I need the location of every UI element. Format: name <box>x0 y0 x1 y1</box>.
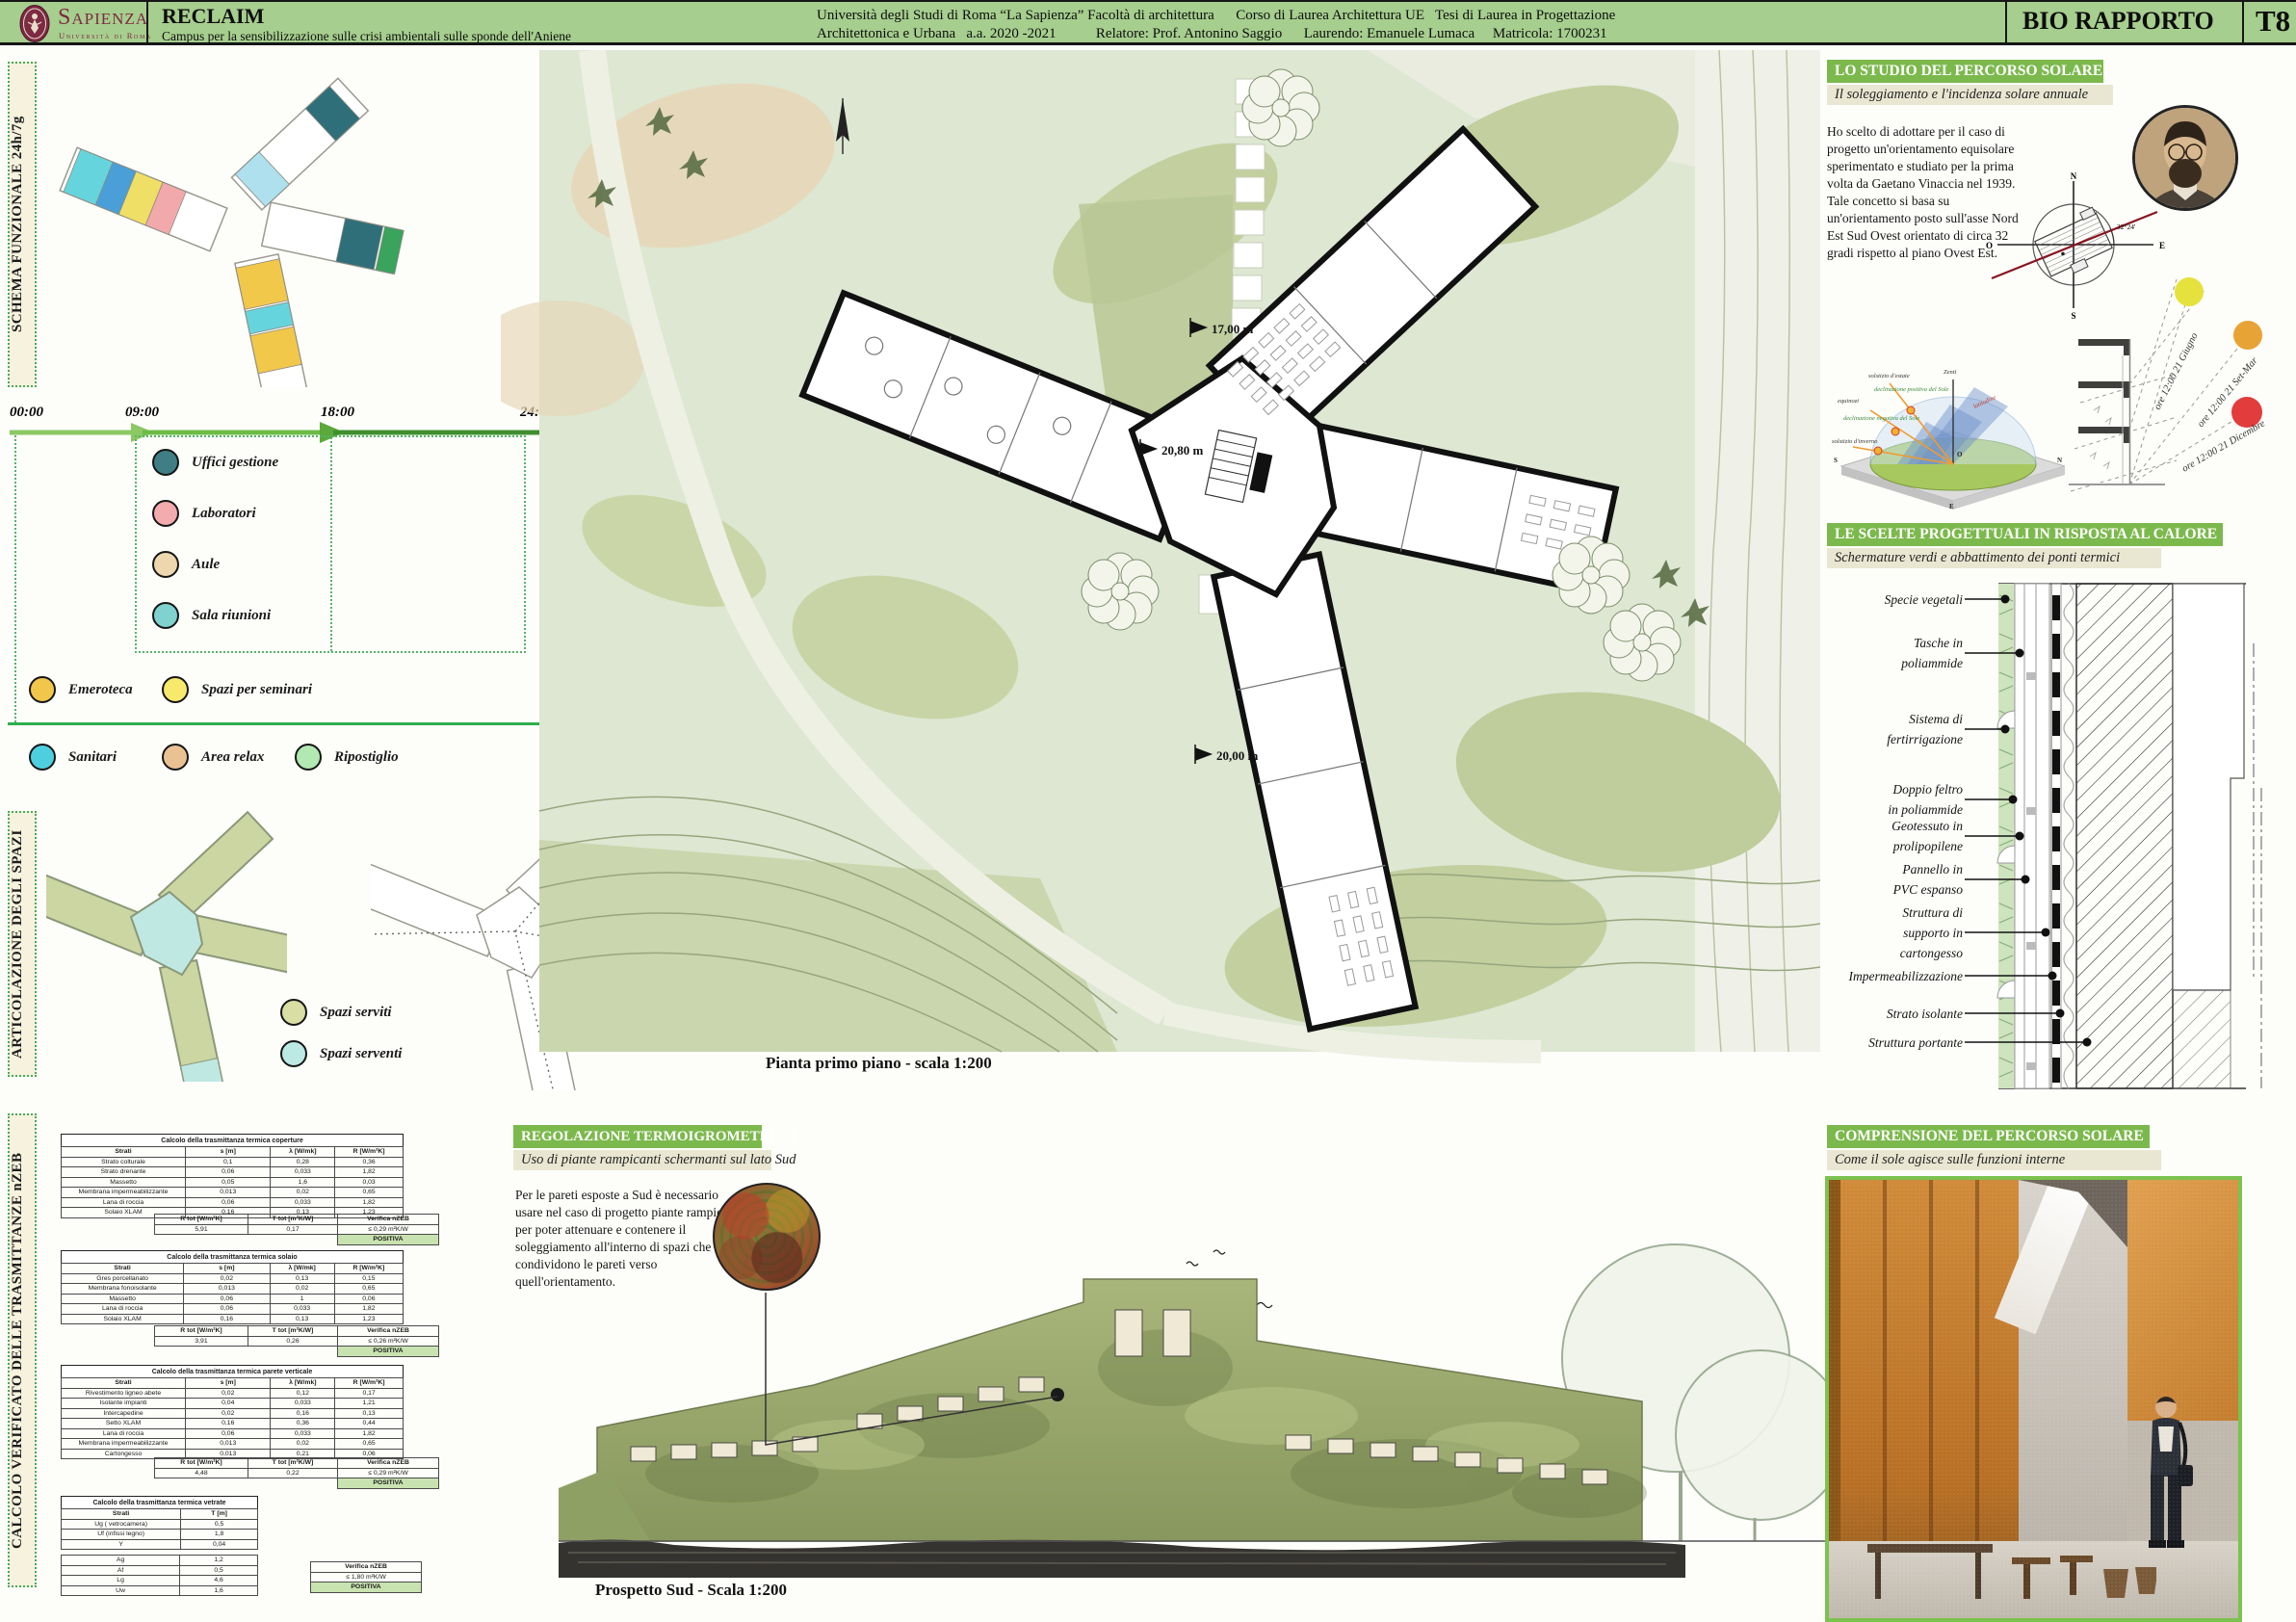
sapienza-logo-icon <box>19 5 50 42</box>
table-row: Gres porcellanato0,020,130,15 <box>62 1273 404 1284</box>
data-table: Ag1,2Af0,5Lg4,6Uw1,6 <box>61 1555 258 1596</box>
board-code: T8 <box>2256 4 2290 39</box>
legend-label: Sala riunioni <box>192 608 271 624</box>
table-row: Membrana impermeabilizzante0,0130,020,65 <box>62 1188 404 1198</box>
data-table: Stratis [m]λ [W/mk]R [W/m²K]Strato coltu… <box>61 1146 404 1218</box>
table-coperture: Calcolo della trasmittanza termica coper… <box>61 1134 404 1218</box>
table-row: 3,910,26≤ 0,26 m²K/W <box>155 1336 439 1347</box>
table-row: Strato drenante0,060,0331,82 <box>62 1167 404 1178</box>
legend-label: Area relax <box>201 749 264 766</box>
legend-label: Emeroteca <box>68 682 133 698</box>
table-row: Massetto0,051,60,03 <box>62 1177 404 1188</box>
table-title: Calcolo della trasmittanza termica paret… <box>61 1365 404 1377</box>
sun-icon-june <box>2175 277 2204 306</box>
tab-calcolo: CALCOLO VERIFICATO DELLE TRASMITTANZE nZ… <box>8 1113 37 1587</box>
hemisphere-label: O <box>1957 451 1963 458</box>
section-label: Strato isolante <box>1825 1004 1963 1024</box>
header-divider <box>146 2 148 42</box>
table-row: Stratis [m]λ [W/mk]R [W/m²K] <box>62 1147 404 1158</box>
legend-item: Emeroteca <box>29 676 162 703</box>
table-row: R tot [W/m²K]T tot [m²K/W]Verifica nZEB <box>155 1326 439 1337</box>
credits-line1: Università degli Studi di Roma “La Sapie… <box>817 8 1615 23</box>
logo-wordmark: Sapienza <box>58 6 148 29</box>
hemisphere-label: solstizio d'inverno <box>1832 438 1878 445</box>
legend-color-dot <box>280 1040 307 1067</box>
dimension-2000m: 20,00 m <box>1216 748 1259 763</box>
legend-label: Spazi serventi <box>320 1046 402 1062</box>
legend-item: Sanitari <box>29 744 162 771</box>
solare-subtitle-bar: Il soleggiamento e l'incidenza solare an… <box>1827 85 2113 105</box>
hemisphere-label: declinazione positiva del Sole <box>1874 386 1949 393</box>
data-table: Stratis [m]λ [W/mk]R [W/m²K]Gres porcell… <box>61 1263 404 1324</box>
table-row: Strato colturale0,10,280,36 <box>62 1157 404 1167</box>
legend-label: Spazi serviti <box>320 1005 392 1021</box>
header-divider <box>2005 2 2007 42</box>
summary-table: R tot [W/m²K]T tot [m²K/W]Verifica nZEB5… <box>154 1214 439 1245</box>
plan-caption: Pianta primo piano - scala 1:200 <box>766 1054 992 1073</box>
table-row: Membrana impermeabilizzante0,0130,020,65 <box>62 1439 404 1450</box>
table-row: Lana di roccia0,060,0331,82 <box>62 1304 404 1315</box>
project-title: RECLAIM <box>162 4 264 29</box>
data-table: Stratis [m]λ [W/mk]R [W/m²K]Rivestimento… <box>61 1377 404 1459</box>
table-row: Intercapedine0,020,160,13 <box>62 1408 404 1419</box>
table-row: Stratis [m]λ [W/mk]R [W/m²K] <box>62 1264 404 1274</box>
dimension-17m: 17,00 m <box>1212 322 1254 336</box>
legend-label: Laboratori <box>192 506 256 522</box>
hemisphere-label: S <box>1834 457 1838 464</box>
timeline-label: 09:00 <box>125 405 159 420</box>
project-subtitle: Campus per la sensibilizzazione sulle cr… <box>162 29 571 44</box>
legend-color-dot <box>295 744 322 771</box>
table-vetrate-extra: Ag1,2Af0,5Lg4,6Uw1,6 <box>61 1555 258 1596</box>
legend-label: Ripostiglio <box>334 749 399 766</box>
section-label: Struttura portante <box>1815 1033 1963 1053</box>
elevation-caption: Prospetto Sud - Scala 1:200 <box>595 1581 787 1600</box>
table-solaio: Calcolo della trasmittanza termica solai… <box>61 1250 404 1324</box>
ground-band <box>559 1539 1685 1578</box>
timeline-label: 18:00 <box>321 405 354 420</box>
table-row: Isolante impianti0,040,0331,21 <box>62 1399 404 1409</box>
tree-icon <box>1082 553 1159 630</box>
compass-n: N <box>2071 171 2077 181</box>
table-row: Lg4,6 <box>62 1576 258 1586</box>
green-wall-section-drawing <box>1965 576 2296 1096</box>
legend-label: Sanitari <box>68 749 117 766</box>
legend-separator-line <box>8 722 541 725</box>
section-label: Struttura di supporto in cartongesso <box>1825 903 1963 963</box>
summary-table: R tot [W/m²K]T tot [m²K/W]Verifica nZEB4… <box>154 1457 439 1489</box>
legend-label: Spazi per seminari <box>201 682 312 698</box>
table-row: Verifica nZEB <box>311 1562 422 1573</box>
interior-render <box>1825 1176 2242 1622</box>
render-grain-overlay <box>1829 1180 2238 1618</box>
sun-icon-equinox <box>2233 321 2262 350</box>
hemisphere-label: equinozi <box>1838 398 1859 405</box>
table-row: Y0,04 <box>62 1539 258 1550</box>
tab-articolazione: ARTICOLAZIONE DEGLI SPAZI <box>8 811 37 1077</box>
regolazione-title-bar: REGOLAZIONE TERMOIGROMETRICA <box>513 1125 762 1148</box>
table-row: Uw1,6 <box>62 1585 258 1596</box>
table-row: StratiT [m] <box>62 1509 258 1520</box>
board-title: BIO RAPPORTO <box>2022 7 2214 36</box>
transmittance-tables: Calcolo della trasmittanza termica coper… <box>58 1125 520 1607</box>
section-label: Specie vegetali <box>1825 589 1963 610</box>
table-row: 5,910,17≤ 0,29 m²K/W <box>155 1224 439 1235</box>
logo-wordmark-sub: Università di Roma <box>59 31 152 40</box>
section-label: Tasche in poliammide <box>1825 633 1963 673</box>
table-row: Solaio XLAM0,160,131,23 <box>62 1314 404 1324</box>
legend-color-dot <box>162 676 189 703</box>
regolazione-subtitle-bar: Uso di piante rampicanti schermanti sul … <box>513 1150 771 1170</box>
comprensione-title-bar: COMPRENSIONE DEL PERCORSO SOLARE <box>1827 1125 2150 1148</box>
legend-label: Uffici gestione <box>192 455 278 471</box>
hemisphere-label: E <box>1949 503 1954 510</box>
timeline-dotted-line <box>14 435 16 722</box>
section-label: Geotessuto in prolipopilene <box>1825 816 1963 856</box>
verifica-table: Verifica nZEB≤ 1,80 m²K/WPOSITIVA <box>310 1561 422 1593</box>
legend-color-dot <box>29 676 56 703</box>
table-title: Calcolo della trasmittanza termica vetra… <box>61 1496 258 1508</box>
summary-table: R tot [W/m²K]T tot [m²K/W]Verifica nZEB3… <box>154 1325 439 1357</box>
compass-o: O <box>1986 241 1993 250</box>
legend-label: Aule <box>192 557 220 573</box>
tree-icon <box>1242 69 1319 146</box>
hemisphere-label: declinazione negativa del Sole <box>1843 415 1919 422</box>
header-divider <box>2242 2 2244 42</box>
legend-item: Aule <box>152 551 278 578</box>
table-title: Calcolo della trasmittanza termica solai… <box>61 1250 404 1263</box>
tree-icon <box>1552 536 1630 614</box>
compass-angle: 32°24' <box>2117 222 2136 231</box>
legend-item: Ripostiglio <box>295 744 428 771</box>
table-row: 4,480,22≤ 0,29 m²K/W <box>155 1468 439 1478</box>
table-row: Stratis [m]λ [W/mk]R [W/m²K] <box>62 1378 404 1389</box>
legend-mid-row: EmerotecaSpazi per seminari <box>29 676 295 703</box>
functional-scheme-diagram <box>58 60 443 387</box>
table-row: ≤ 1,80 m²K/W <box>311 1572 422 1583</box>
ivy-leader-dot <box>1051 1388 1064 1401</box>
section-label: Doppio feltro in poliammide <box>1825 779 1963 820</box>
tab-schema-funzionale: SCHEMA FUNZIONALE 24h/7g <box>8 62 37 387</box>
legend-color-dot <box>152 500 179 527</box>
legend-main: Uffici gestioneLaboratoriAuleSala riunio… <box>152 449 278 653</box>
legend-item: Sala riunioni <box>152 602 278 629</box>
section-label: Pannello in PVC espanso <box>1825 859 1963 900</box>
table-row: POSITIVA <box>311 1583 422 1593</box>
credits-block: Università degli Studi di Roma “La Sapie… <box>817 7 1615 43</box>
hemisphere-label: solstizio d'estate <box>1868 373 1910 379</box>
site-plan: 17,00 m 20,80 m 20,00 m <box>501 50 1820 1066</box>
table-coperture-summary: R tot [W/m²K]T tot [m²K/W]Verifica nZEB5… <box>154 1214 439 1245</box>
legend-box-divider <box>330 437 332 651</box>
legend-color-dot <box>162 744 189 771</box>
scelte-subtitle-bar: Schermature verdi e abbattimento dei pon… <box>1827 548 2161 568</box>
dimension-2080m: 20,80 m <box>1161 443 1204 458</box>
table-row: POSITIVA <box>155 1478 439 1489</box>
thesis-board: Sapienza Università di Roma RECLAIM Camp… <box>0 0 2296 1622</box>
legend-item: Spazi per seminari <box>162 676 295 703</box>
sun-hemisphere-diagram: Zenit solstizio d'estate equinozi declin… <box>1830 358 2065 512</box>
header-bar: Sapienza Università di Roma RECLAIM Camp… <box>0 0 2296 45</box>
table-row: Lana di roccia0,060,0331,82 <box>62 1428 404 1439</box>
legend-item: Spazi serventi <box>280 1040 402 1067</box>
served-spaces-diagram <box>46 807 287 1082</box>
structure-hatch <box>2076 584 2173 1088</box>
table-row: Membrana fonoisolante0,0130,020,65 <box>62 1284 404 1295</box>
legend-color-dot <box>280 999 307 1026</box>
table-row: R tot [W/m²K]T tot [m²K/W]Verifica nZEB <box>155 1458 439 1469</box>
south-elevation-drawing <box>539 1194 1849 1609</box>
compass-e: E <box>2159 241 2165 250</box>
data-table: StratiT [m]Ug ( vetrocamera)0,5Uf (infis… <box>61 1508 258 1550</box>
tree-icon <box>1604 604 1681 681</box>
table-row: Ag1,2 <box>62 1556 258 1566</box>
sun-path-label: ore 12:00 21 Giugno <box>2152 331 2201 411</box>
timeline-label: 00:00 <box>10 405 43 420</box>
articolazione-legend: Spazi servitiSpazi serventi <box>280 999 402 1082</box>
hemisphere-label: Zenit <box>1944 369 1957 376</box>
table-row: Lana di roccia0,060,0331,82 <box>62 1197 404 1208</box>
table-row: POSITIVA <box>155 1347 439 1357</box>
legend-item: Area relax <box>162 744 295 771</box>
table-vetrate: Calcolo della trasmittanza termica vetra… <box>61 1496 258 1550</box>
legend-color-dot <box>152 602 179 629</box>
comprensione-subtitle-bar: Come il sole agisce sulle funzioni inter… <box>1827 1150 2161 1170</box>
table-solaio-summary: R tot [W/m²K]T tot [m²K/W]Verifica nZEB3… <box>154 1325 439 1357</box>
table-parete-summary: R tot [W/m²K]T tot [m²K/W]Verifica nZEB4… <box>154 1457 439 1489</box>
table-row: R tot [W/m²K]T tot [m²K/W]Verifica nZEB <box>155 1215 439 1225</box>
legend-color-dot <box>152 551 179 578</box>
table-row: POSITIVA <box>155 1235 439 1245</box>
vetrate-verifica-box: Verifica nZEB≤ 1,80 m²K/WPOSITIVA <box>310 1561 422 1593</box>
section-label: Impermeabilizzazione <box>1803 966 1963 986</box>
solare-title-bar: LO STUDIO DEL PERCORSO SOLARE <box>1827 60 2103 83</box>
table-row: Ug ( vetrocamera)0,5 <box>62 1519 258 1530</box>
section-label: Sistema di fertirrigazione <box>1825 709 1963 749</box>
legend-item: Spazi serviti <box>280 999 402 1026</box>
legend-color-dot <box>152 449 179 476</box>
table-title: Calcolo della trasmittanza termica coper… <box>61 1134 404 1146</box>
legend-item: Uffici gestione <box>152 449 278 476</box>
table-row: Massetto0,0610,06 <box>62 1294 404 1304</box>
table-row: Af0,5 <box>62 1565 258 1576</box>
table-parete: Calcolo della trasmittanza termica paret… <box>61 1365 404 1459</box>
legend-item: Laboratori <box>152 500 278 527</box>
legend-color-dot <box>29 744 56 771</box>
scelte-title-bar: LE SCELTE PROGETTUALI IN RISPOSTA AL CAL… <box>1827 523 2223 546</box>
table-row: Rivestimento ligneo abete0,020,120,17 <box>62 1388 404 1399</box>
legend-bottom-row: SanitariArea relaxRipostiglio <box>29 744 428 771</box>
credits-line2: Architettonica e Urbana a.a. 2020 -2021 … <box>817 26 1607 41</box>
table-row: Uf (infissi legno)1,8 <box>62 1530 258 1540</box>
table-row: Setto XLAM0,160,360,44 <box>62 1419 404 1429</box>
sun-path-section-diagram: ore 12:00 21 Giugno ore 12:00 21 Set-Mar… <box>2061 268 2296 499</box>
